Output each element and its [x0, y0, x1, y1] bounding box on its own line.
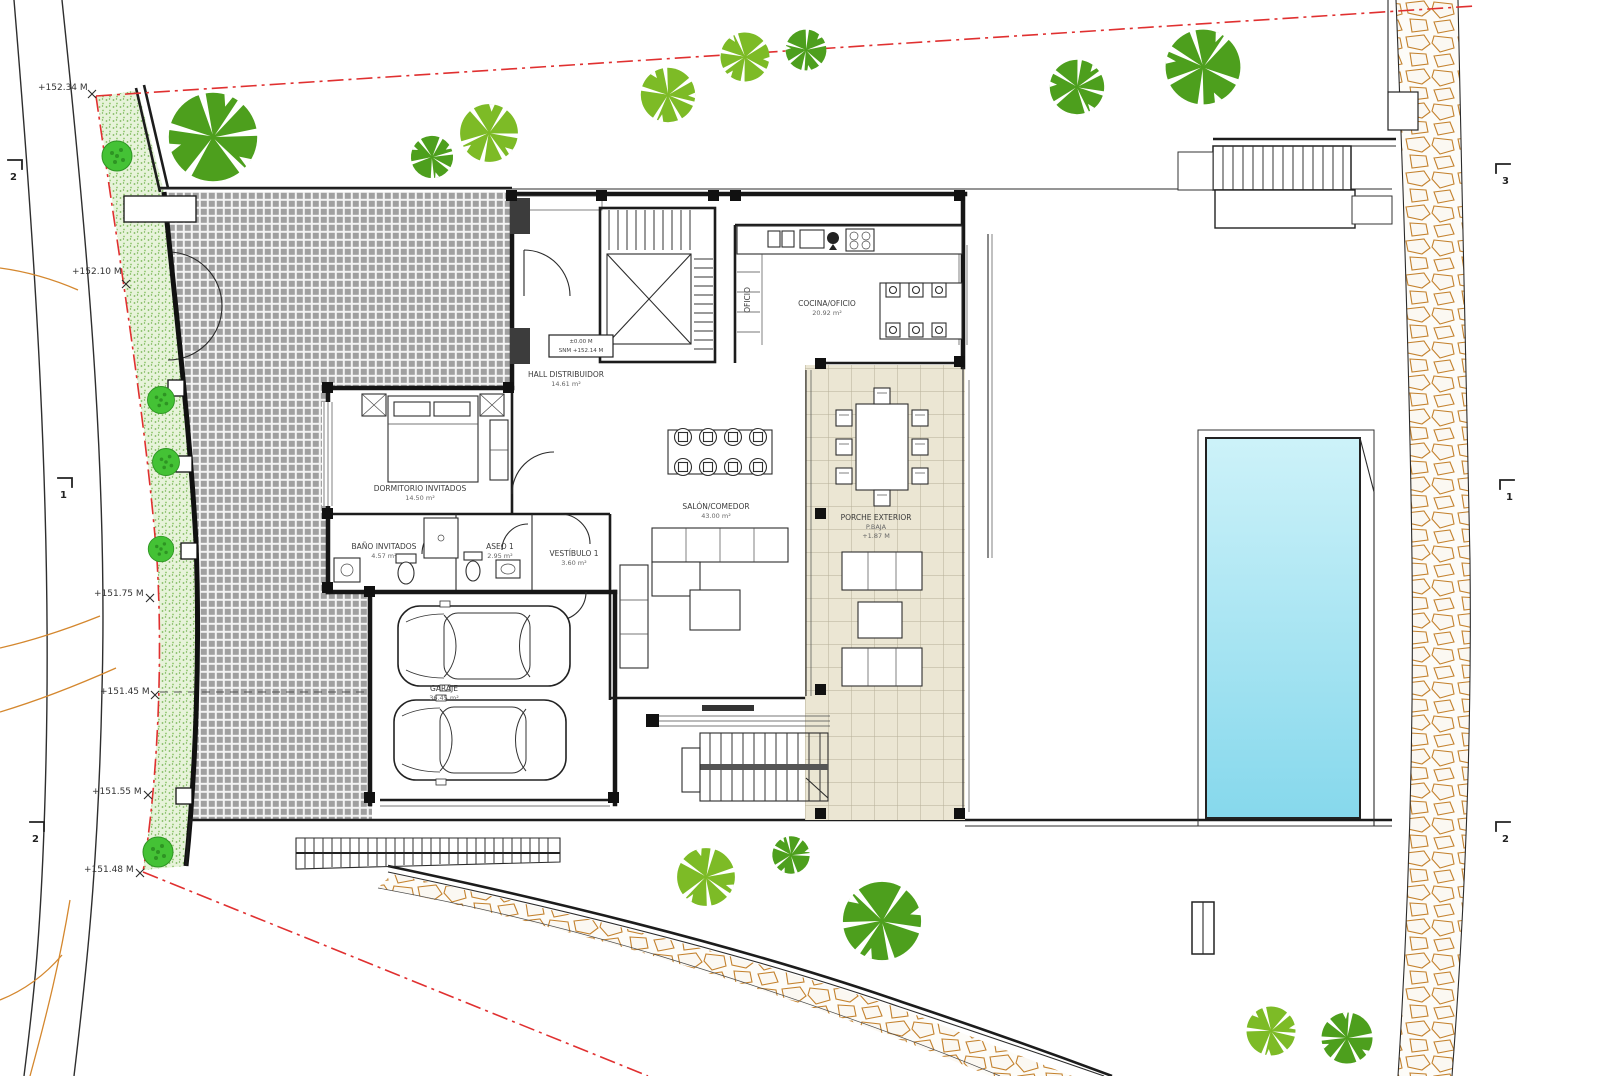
room-label-oficio: OFICIO [743, 287, 752, 313]
svg-text:4.57 m²: 4.57 m² [371, 552, 397, 560]
room-label-dormitorio: DORMITORIO INVITADOS [374, 484, 467, 493]
pool [1198, 430, 1374, 826]
elevation-mark: +152.10 M [72, 267, 122, 277]
sink-icon [768, 231, 780, 247]
room-label-cocina: COCINA/OFICIO [798, 299, 856, 308]
floor-plan-canvas: ±0.00 M SNM +152.14 M [0, 0, 1600, 1076]
room-label-banio: BAÑO INVITADOS [352, 542, 417, 551]
section-mark: 1 [60, 490, 67, 501]
level-box: ±0.00 M SNM +152.14 M [549, 335, 613, 357]
pillow [434, 402, 470, 416]
nightstand [480, 394, 504, 416]
stone-band-right [1388, 0, 1470, 1076]
level-value: ±0.00 M [569, 339, 593, 345]
svg-text:14.61 m²: 14.61 m² [551, 380, 581, 388]
road-lines [14, 0, 103, 1076]
svg-text:36.45 m²: 36.45 m² [429, 694, 459, 702]
room-label-aseo: ASEO 1 [486, 542, 514, 551]
svg-text:+1.87 M: +1.87 M [862, 532, 890, 540]
shower [424, 518, 458, 558]
terrace-gate [1192, 902, 1214, 954]
elevation-mark: +151.45 M [100, 687, 150, 697]
cooktop-icon [846, 229, 874, 251]
appliance-icon [800, 230, 824, 248]
room-label-salon: SALÓN/COMEDOR [682, 502, 749, 511]
svg-text:P.BAJA: P.BAJA [866, 523, 887, 531]
outdoor-table [856, 404, 908, 490]
car-1 [398, 601, 570, 691]
sink-icon [782, 231, 794, 247]
elevation-mark: +152.34 M [38, 83, 88, 93]
elevation-mark: +151.55 M [92, 787, 142, 797]
coffee-table [690, 590, 740, 630]
wc [398, 562, 414, 584]
car-2 [394, 695, 566, 785]
stone-path-bottom [378, 866, 1112, 1076]
room-label-vestibulo: VESTÍBULO 1 [549, 549, 598, 558]
sink [496, 560, 520, 578]
nightstand [362, 394, 386, 416]
side-table [858, 602, 902, 638]
svg-text:43.00 m²: 43.00 m² [701, 512, 731, 520]
room-label-hall: HALL DISTRIBUIDOR [528, 370, 604, 379]
dining-set [668, 429, 772, 476]
wc [466, 561, 480, 581]
contour-lines [0, 268, 116, 1076]
section-mark: 2 [1502, 834, 1509, 845]
section-mark: 1 [1506, 492, 1513, 503]
room-label-garaje: GARAJE [430, 684, 458, 693]
level-datum: SNM +152.14 M [559, 348, 604, 354]
stairs-top-right [1178, 139, 1396, 228]
section-mark: 2 [10, 172, 17, 183]
section-mark: 2 [32, 834, 39, 845]
elevation-mark: +151.75 M [94, 589, 144, 599]
section-mark: 3 [1502, 176, 1509, 187]
entrance-pillar [510, 328, 530, 364]
svg-text:3.60 m²: 3.60 m² [561, 559, 587, 567]
svg-text:2.95 m²: 2.95 m² [487, 552, 513, 560]
elevation-mark: +151.48 M [84, 865, 134, 875]
site-plan: ±0.00 M SNM +152.14 M [0, 0, 1600, 1076]
tv-sideboard [620, 565, 648, 668]
entrance-pillar [510, 198, 530, 234]
svg-text:20.92 m²: 20.92 m² [812, 309, 842, 317]
room-label-porche: PORCHE EXTERIOR [841, 513, 912, 522]
svg-text:14.50 m²: 14.50 m² [405, 494, 435, 502]
lounge-chair [842, 648, 922, 686]
vanity [334, 558, 360, 582]
stairs-garden [296, 838, 560, 869]
wc-tank [464, 552, 482, 560]
pillow [394, 402, 430, 416]
lounge-chair [842, 552, 922, 590]
